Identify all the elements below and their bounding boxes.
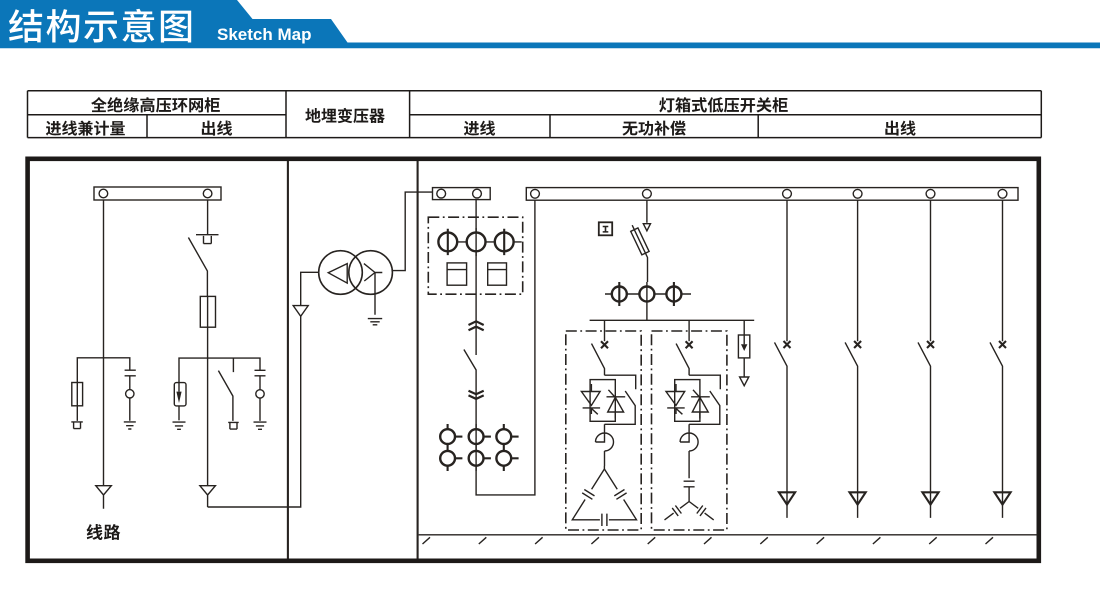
svg-text:Sketch Map: Sketch Map <box>217 25 311 44</box>
